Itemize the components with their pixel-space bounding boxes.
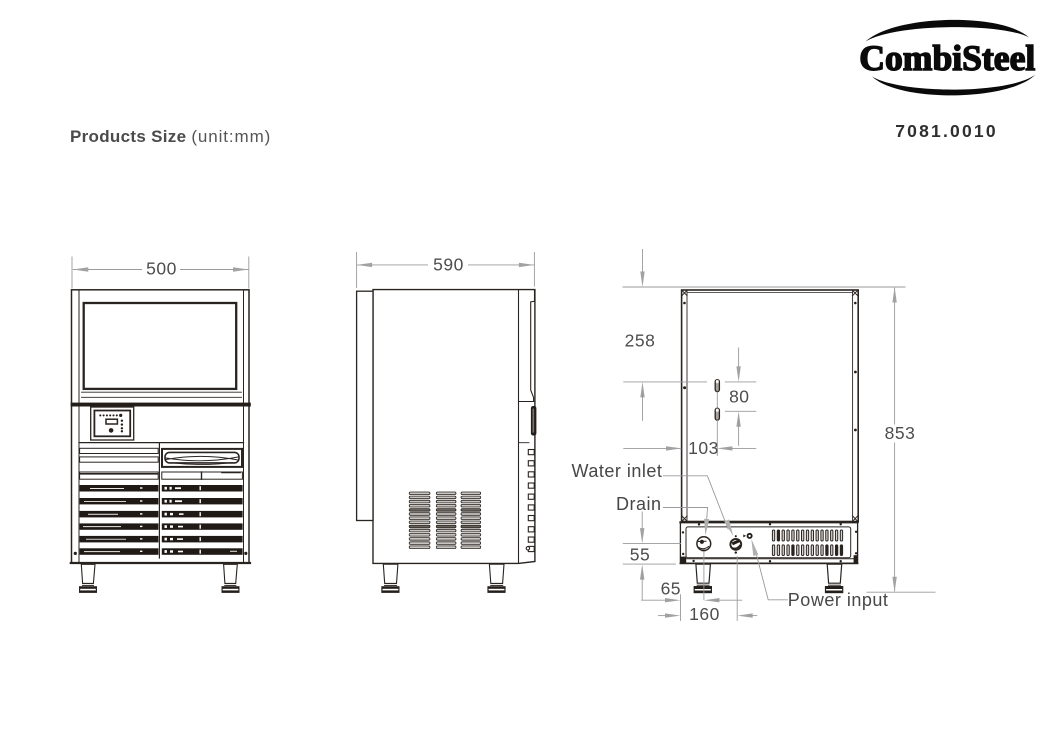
svg-text:258: 258 (625, 331, 656, 351)
svg-text:500: 500 (146, 258, 177, 278)
svg-text:103: 103 (688, 438, 719, 458)
svg-text:7081.0010: 7081.0010 (895, 121, 998, 141)
svg-text:Products Size (unit:mm): Products Size (unit:mm) (70, 127, 271, 146)
svg-text:65: 65 (661, 579, 681, 599)
svg-text:55: 55 (630, 545, 650, 565)
svg-text:80: 80 (729, 386, 749, 406)
svg-text:Drain: Drain (616, 494, 662, 514)
svg-text:853: 853 (885, 423, 916, 443)
svg-text:160: 160 (689, 604, 720, 624)
svg-text:590: 590 (433, 255, 464, 275)
svg-text:Water inlet: Water inlet (572, 461, 663, 481)
svg-text:Power input: Power input (788, 590, 889, 610)
svg-text:CombiSteel: CombiSteel (859, 38, 1035, 78)
